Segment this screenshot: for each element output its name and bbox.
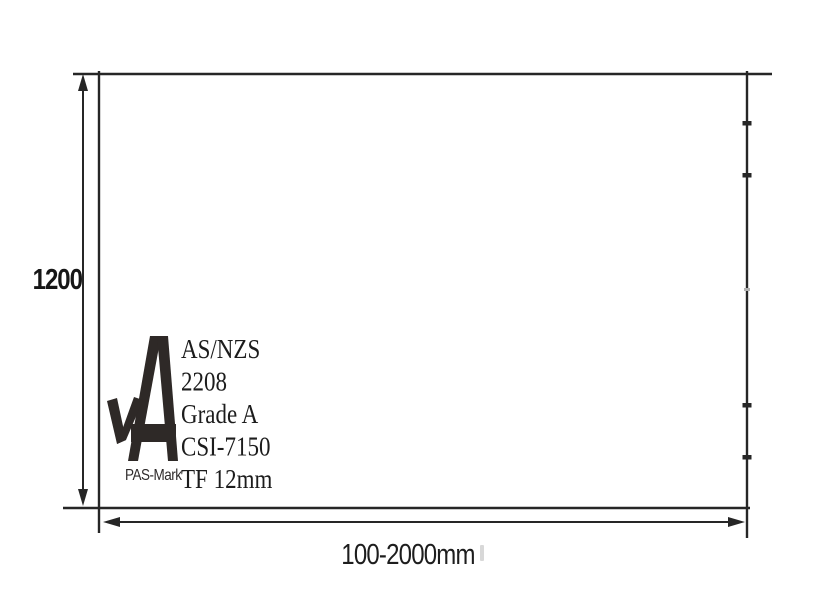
cert-line-standard: AS/NZS	[181, 333, 272, 365]
hinge-tick	[743, 403, 752, 408]
width-dimension	[103, 517, 745, 527]
cert-line-number: 2208	[181, 365, 272, 397]
cert-line-grade: Grade A	[181, 398, 272, 430]
a-right-leg	[157, 336, 178, 461]
cert-line-licence: CSI-7150	[181, 430, 272, 462]
width-dimension-label: 100-2000mm	[308, 540, 508, 572]
scan-artifact	[480, 545, 484, 561]
height-dimension-label: 1200	[18, 265, 82, 297]
cert-line-thickness: TF 12mm	[181, 463, 272, 495]
hinge-tick-faint	[744, 288, 750, 291]
hinge-tick	[743, 173, 752, 178]
arrow-left-icon	[103, 517, 120, 527]
glass-panel-dimension-diagram: 1200 100-2000mm AS/NZS 2208 Grade A CSI-…	[0, 0, 823, 603]
pas-mark-label: PAS-Mark	[125, 466, 182, 483]
hinge-tick	[743, 455, 752, 460]
arrow-up-icon	[78, 74, 88, 91]
a-left-leg	[128, 336, 161, 461]
arrow-right-icon	[728, 517, 745, 527]
certification-text-block: AS/NZS 2208 Grade A CSI-7150 TF 12mm	[181, 333, 272, 495]
hinge-tick	[743, 121, 752, 126]
diagram-drawing	[0, 0, 823, 603]
arrow-down-icon	[78, 489, 88, 506]
a-crossbar	[131, 424, 176, 442]
pas-mark-logo-icon	[107, 336, 178, 461]
